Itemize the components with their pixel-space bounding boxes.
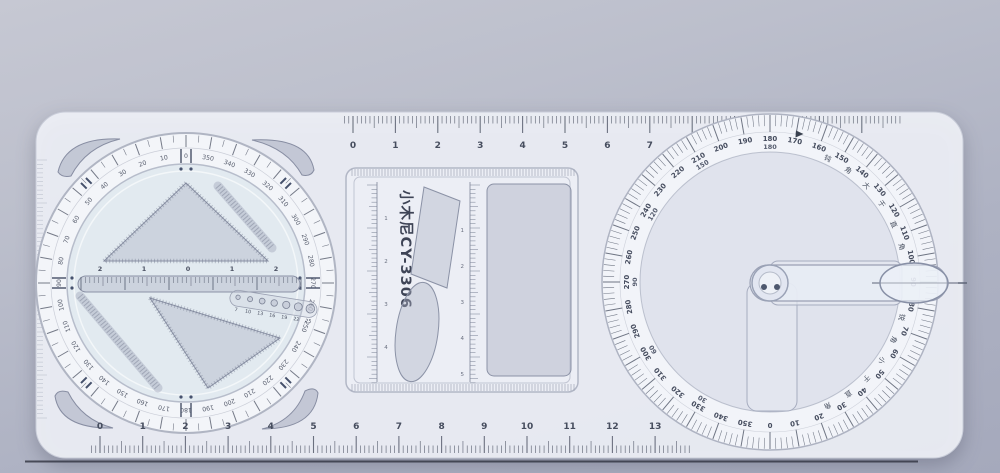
ruler-number: 2 bbox=[435, 141, 441, 151]
index-dot bbox=[70, 276, 73, 279]
ruler-number: 4 bbox=[519, 141, 525, 151]
ruler-number: 0 bbox=[97, 422, 103, 432]
ruler-number: 9 bbox=[481, 422, 487, 432]
index-dot bbox=[70, 286, 73, 289]
hole-size-label: 13 bbox=[257, 310, 264, 317]
ruler-number: 0 bbox=[186, 265, 191, 273]
hole-size-label: 16 bbox=[269, 312, 276, 319]
template-hole bbox=[259, 298, 266, 305]
degree-label: 10 bbox=[789, 418, 800, 428]
ruler-number: 13 bbox=[649, 422, 662, 432]
ruler-number: 3 bbox=[477, 141, 483, 151]
index-dot bbox=[189, 167, 192, 170]
ruler-number: 1 bbox=[392, 141, 398, 151]
ruler-number: 7 bbox=[647, 141, 653, 151]
template-hole bbox=[236, 295, 241, 300]
ruler-number: 0 bbox=[350, 141, 356, 151]
ruler-number: 1 bbox=[230, 265, 235, 273]
degree-label: 180 bbox=[763, 143, 777, 151]
ruler-number: 1 bbox=[140, 422, 146, 432]
ruler-number: 3 bbox=[225, 422, 231, 432]
ruler-number: 1 bbox=[384, 216, 388, 222]
ruler-number: 4 bbox=[461, 336, 465, 342]
index-dot bbox=[179, 395, 182, 398]
ruler-number: 1 bbox=[461, 228, 465, 234]
ruler-number: 8 bbox=[438, 422, 444, 432]
ruler-number: 2 bbox=[98, 265, 103, 273]
ruler-number: 6 bbox=[604, 141, 610, 151]
cursor-lens bbox=[880, 263, 948, 303]
ruler-number: 4 bbox=[268, 422, 274, 432]
protractor-arm bbox=[750, 263, 967, 303]
left-rotary-dial: 0102030405060708090100110120130140150160… bbox=[36, 133, 336, 433]
ruler-number: 5 bbox=[461, 372, 465, 378]
photo-multifunction-drawing-ruler: 0102030405060708090100110120130140150160… bbox=[0, 0, 1000, 473]
ruler-number: 11 bbox=[563, 422, 576, 432]
ruler-number: 3 bbox=[384, 302, 388, 308]
ruler-number: 6 bbox=[353, 422, 359, 432]
hole-size-label: 10 bbox=[245, 309, 252, 316]
degree-label: 180 bbox=[180, 406, 192, 413]
degree-label: 0 bbox=[767, 421, 772, 429]
hole-size-label: 22 bbox=[293, 316, 300, 323]
degree-label: 80 bbox=[57, 256, 65, 265]
degree-label: 270 bbox=[623, 275, 631, 290]
ruler-number: 2 bbox=[461, 264, 465, 270]
ruler-number: 2 bbox=[274, 265, 279, 273]
hole-size-label: 19 bbox=[281, 314, 288, 321]
degree-label: 0 bbox=[184, 153, 188, 160]
ruler-number: 2 bbox=[182, 422, 188, 432]
degree-label: 270 bbox=[309, 277, 316, 289]
ruler-number: 5 bbox=[310, 422, 316, 432]
ruler-number: 1 bbox=[142, 265, 147, 273]
rectangle-cutout bbox=[487, 184, 571, 376]
template-hole bbox=[247, 296, 253, 302]
pivot-button bbox=[752, 265, 788, 301]
ruler-number: 10 bbox=[521, 422, 534, 432]
degree-label: 180 bbox=[763, 135, 778, 143]
degree-label: 90 bbox=[631, 277, 639, 287]
degree-label: 10 bbox=[160, 154, 169, 162]
index-dot bbox=[179, 167, 182, 170]
ruler-number: 4 bbox=[384, 345, 388, 351]
ruler-number: 12 bbox=[606, 422, 619, 432]
hole-size-label: 25 bbox=[305, 318, 312, 325]
ruler-number: 2 bbox=[384, 259, 388, 265]
index-dot bbox=[189, 395, 192, 398]
ruler-number: 5 bbox=[562, 141, 568, 151]
degree-label: 90 bbox=[56, 279, 63, 287]
ruler-number: 3 bbox=[461, 300, 465, 306]
ruler-number: 7 bbox=[396, 422, 402, 432]
template-panel: 1234 12345 小木尼CY-3306 bbox=[346, 168, 578, 392]
